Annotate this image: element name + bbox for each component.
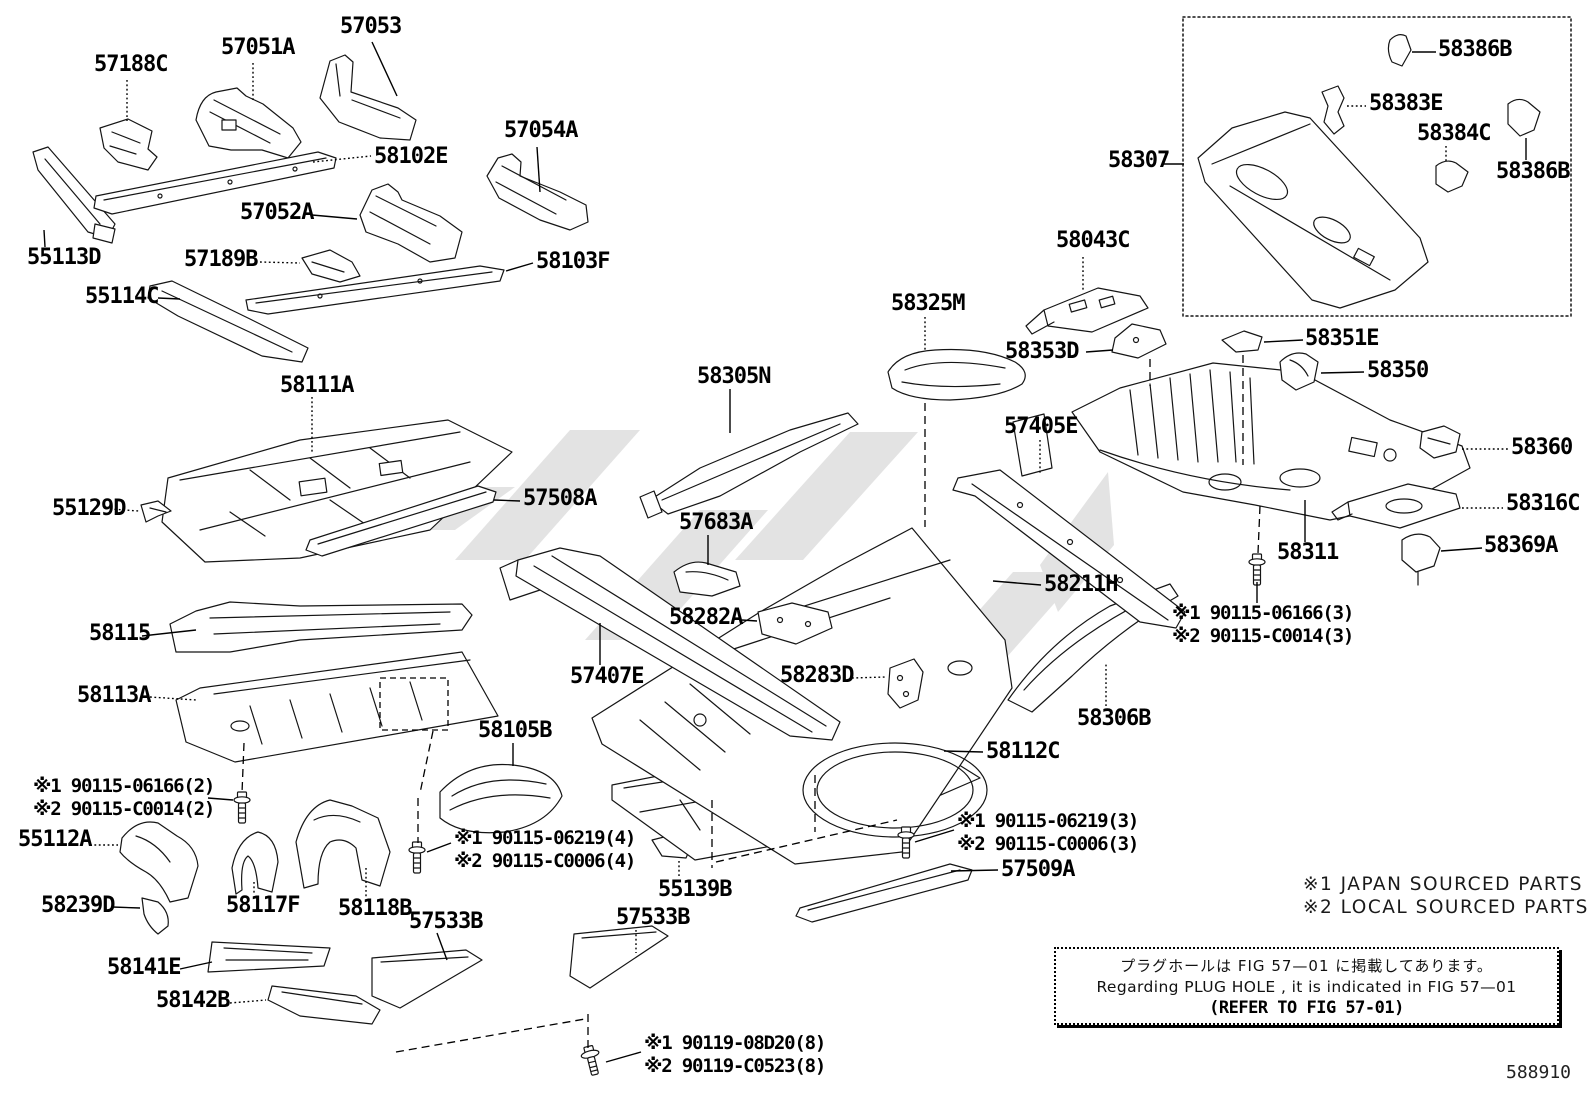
fastener-note-line: ※2 90115-C0014(2) xyxy=(33,798,214,821)
art-58386B-clip-2 xyxy=(1508,99,1540,136)
part-label-58117F-18: 58117F xyxy=(226,896,299,916)
art-58105B-heat-shield xyxy=(440,764,562,832)
part-label-58239D-17: 58239D xyxy=(41,896,114,916)
art-57533B-left-brace xyxy=(372,950,482,1008)
fastener-note-3: ※1 90115-06219(3)※2 90115-C0006(3) xyxy=(957,810,1138,856)
art-57052A xyxy=(360,184,462,262)
part-label-58360-40: 58360 xyxy=(1511,438,1572,458)
diagram-canvas xyxy=(0,0,1592,1099)
part-label-58351E-38: 58351E xyxy=(1305,329,1378,349)
fastener-note-line: ※1 90115-06166(3) xyxy=(1172,602,1353,625)
part-label-55139B-23: 55139B xyxy=(658,880,731,900)
part-label-55129D-11: 55129D xyxy=(52,499,125,519)
fastener-note-1: ※1 90115-06219(4)※2 90115-C0006(4) xyxy=(454,827,635,873)
part-label-55114C-9: 55114C xyxy=(85,287,158,307)
part-label-58325M-26: 58325M xyxy=(891,294,964,314)
note-local-sourced: ※2 LOCAL SOURCED PARTS xyxy=(1303,897,1589,918)
plug-hole-note-en: Regarding PLUG HOLE , it is indicated in… xyxy=(1096,978,1516,996)
part-label-57053-2: 57053 xyxy=(340,17,401,37)
part-label-58103F-8: 58103F xyxy=(536,252,609,272)
part-label-58386B-48: 58386B xyxy=(1496,162,1569,182)
part-label-57405E-35: 57405E xyxy=(1004,417,1077,437)
art-58307-rear-panel xyxy=(1198,112,1428,308)
part-label-58283D-30: 58283D xyxy=(780,666,853,686)
art-58353D xyxy=(1112,324,1166,358)
part-label-57188C-0: 57188C xyxy=(94,55,167,75)
part-label-58350-39: 58350 xyxy=(1367,361,1428,381)
part-label-58118B-19: 58118B xyxy=(338,899,411,919)
part-label-57407E-29: 57407E xyxy=(570,667,643,687)
art-57054A xyxy=(487,154,588,230)
part-label-57683A-27: 57683A xyxy=(679,513,752,533)
art-58383E xyxy=(1322,86,1344,134)
part-label-58113A-14: 58113A xyxy=(77,686,150,706)
art-58386B-clip-1 xyxy=(1388,35,1411,66)
art-58142B xyxy=(268,986,380,1024)
part-label-57533B-20: 57533B xyxy=(409,912,482,932)
part-label-58282A-28: 58282A xyxy=(669,608,742,628)
part-label-57054A-3: 57054A xyxy=(504,121,577,141)
art-57188C xyxy=(100,119,157,170)
part-label-55113D-6: 55113D xyxy=(27,248,100,268)
part-label-57189B-7: 57189B xyxy=(184,250,257,270)
fastener-note-line: ※2 90119-C0523(8) xyxy=(644,1055,825,1078)
figure-code: 588910 xyxy=(1506,1062,1571,1083)
art-57533B-right-brace xyxy=(570,926,668,988)
fastener-note-0: ※1 90115-06166(2)※2 90115-C0014(2) xyxy=(33,775,214,821)
part-label-58105B-15: 58105B xyxy=(478,721,551,741)
fastener-note-line: ※1 90115-06219(4) xyxy=(454,827,635,850)
part-label-58142B-22: 58142B xyxy=(156,991,229,1011)
art-58117F xyxy=(232,832,278,894)
fastener-note-4: ※1 90115-06166(3)※2 90115-C0014(3) xyxy=(1172,602,1353,648)
part-label-58369A-42: 58369A xyxy=(1484,536,1557,556)
art-55114C xyxy=(148,281,308,362)
parts-diagram-page: 57188C57051A5705357054A58102E57052A55113… xyxy=(0,0,1592,1099)
part-label-58102E-4: 58102E xyxy=(374,147,447,167)
fastener-note-line: ※2 90115-C0006(3) xyxy=(957,833,1138,856)
fastener-note-line: ※1 90115-06219(3) xyxy=(957,810,1138,833)
art-58118B xyxy=(296,800,390,888)
plug-hole-note-jp: プラグホールは FIG 57—01 に掲載してあります。 xyxy=(1120,955,1493,976)
part-label-55112A-16: 55112A xyxy=(18,830,91,850)
fastener-note-line: ※2 90115-C0006(4) xyxy=(454,850,635,873)
art-58141E xyxy=(208,942,330,972)
note-japan-sourced: ※1 JAPAN SOURCED PARTS xyxy=(1303,874,1583,895)
bolt-icon xyxy=(234,792,250,823)
art-58113A-center-floor-pan xyxy=(176,652,498,762)
part-label-58115-13: 58115 xyxy=(89,624,150,644)
part-label-58307-44: 58307 xyxy=(1108,151,1169,171)
part-label-57052A-5: 57052A xyxy=(240,203,313,223)
art-58369A xyxy=(1402,534,1440,585)
part-label-58111A-10: 58111A xyxy=(280,376,353,396)
part-label-58112C-33: 58112C xyxy=(986,742,1059,762)
part-label-57508A-12: 57508A xyxy=(523,489,596,509)
part-label-58306B-32: 58306B xyxy=(1077,709,1150,729)
bolt-icon xyxy=(409,842,425,873)
plug-hole-note-ref: (REFER TO FIG 57-01) xyxy=(1209,998,1404,1018)
bolt-icon xyxy=(579,1044,603,1076)
art-58384C xyxy=(1436,161,1468,192)
art-58115-member xyxy=(170,602,472,652)
fastener-note-line: ※1 90115-06166(2) xyxy=(33,775,214,798)
part-label-58386B-45: 58386B xyxy=(1438,40,1511,60)
art-58103F xyxy=(246,266,504,314)
plug-hole-note-box: プラグホールは FIG 57—01 に掲載してあります。 Regarding P… xyxy=(1054,947,1559,1025)
part-label-58311-43: 58311 xyxy=(1277,543,1338,563)
art-57051A xyxy=(196,88,301,158)
part-label-58211H-31: 58211H xyxy=(1044,575,1117,595)
art-58351E xyxy=(1222,331,1262,352)
fastener-note-2: ※1 90119-08D20(8)※2 90119-C0523(8) xyxy=(644,1032,825,1078)
art-57053 xyxy=(320,55,416,140)
bolt-icon xyxy=(1249,554,1265,585)
art-57189B xyxy=(302,250,360,282)
art-57509A-sill-strip xyxy=(796,864,972,922)
art-58283D xyxy=(888,659,923,708)
part-label-58316C-41: 58316C xyxy=(1506,494,1579,514)
part-label-58384C-47: 58384C xyxy=(1417,124,1490,144)
part-label-57509A-34: 57509A xyxy=(1001,860,1074,880)
part-label-58043C-37: 58043C xyxy=(1056,231,1129,251)
art-58239D xyxy=(142,898,168,934)
art-57683A xyxy=(674,562,740,596)
art-55112A xyxy=(120,822,198,902)
part-label-58141E-21: 58141E xyxy=(107,958,180,978)
part-label-58305N-25: 58305N xyxy=(697,367,770,387)
part-label-57051A-1: 57051A xyxy=(221,38,294,58)
part-label-58383E-46: 58383E xyxy=(1369,94,1442,114)
fastener-note-line: ※2 90115-C0014(3) xyxy=(1172,625,1353,648)
fastener-note-line: ※1 90119-08D20(8) xyxy=(644,1032,825,1055)
part-label-58353D-36: 58353D xyxy=(1005,342,1078,362)
part-label-57533B-24: 57533B xyxy=(616,908,689,928)
